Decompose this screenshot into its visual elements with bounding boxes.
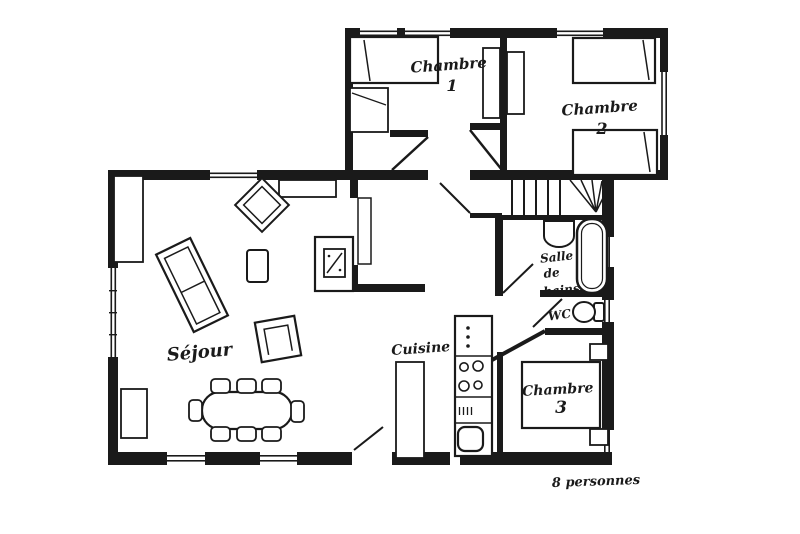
room-number-chambre-1: 1 [446,76,457,95]
room-label-wc: WC [547,306,572,323]
room-number-chambre-3: 3 [555,398,567,418]
kitchen-cabinet-icon [396,362,424,458]
room-number-chambre-2: 2 [595,119,607,138]
storage-box-icon [121,389,147,438]
coffee-table-icon [247,250,268,282]
bathtub-icon [577,219,607,293]
cabinet-icon [114,176,143,262]
toilet-icon [573,302,604,322]
room-label-salle-de-bains-2: de [543,265,561,281]
stove-icon [315,237,353,291]
door-leaf [358,198,371,264]
room-label-cuisine: Cuisine [391,339,451,359]
room-label-chambre-2: Chambre [561,96,638,119]
room-label-salle-de-bains-1: Salle [539,248,574,265]
washbasin-icon [544,221,574,247]
room-label-sejour: Séjour [166,339,235,366]
bed-icon [573,130,657,175]
sofa-icon [156,238,228,332]
sideboard-icon [279,180,336,197]
bed-icon [573,38,655,83]
stairs-icon [512,180,608,215]
closet-icon [350,88,388,132]
capacity-note: 8 personnes [552,473,641,491]
upper-floor-block: Chambre 1 Chambre 2 [345,28,668,180]
floor-plan: Chambre 1 Chambre 2 [0,0,800,534]
main-floor-block: Séjour Cuisine Salle de bains WC Chambre… [108,170,614,465]
dining-table-icon [202,392,292,429]
armchair-icon [255,316,301,362]
